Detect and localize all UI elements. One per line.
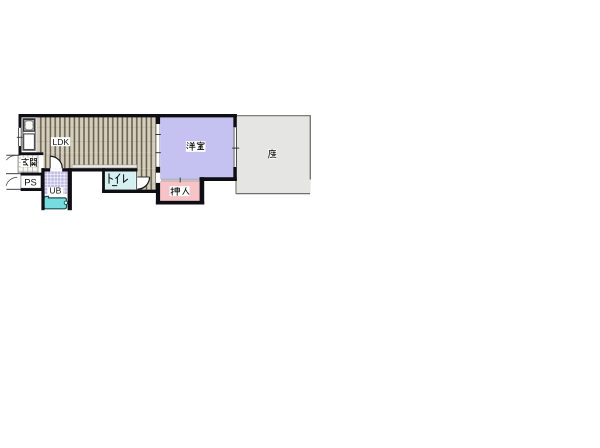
svg-text:UB: UB [49,185,61,195]
svg-text:LDK: LDK [53,137,70,147]
svg-text:PS: PS [24,177,37,188]
